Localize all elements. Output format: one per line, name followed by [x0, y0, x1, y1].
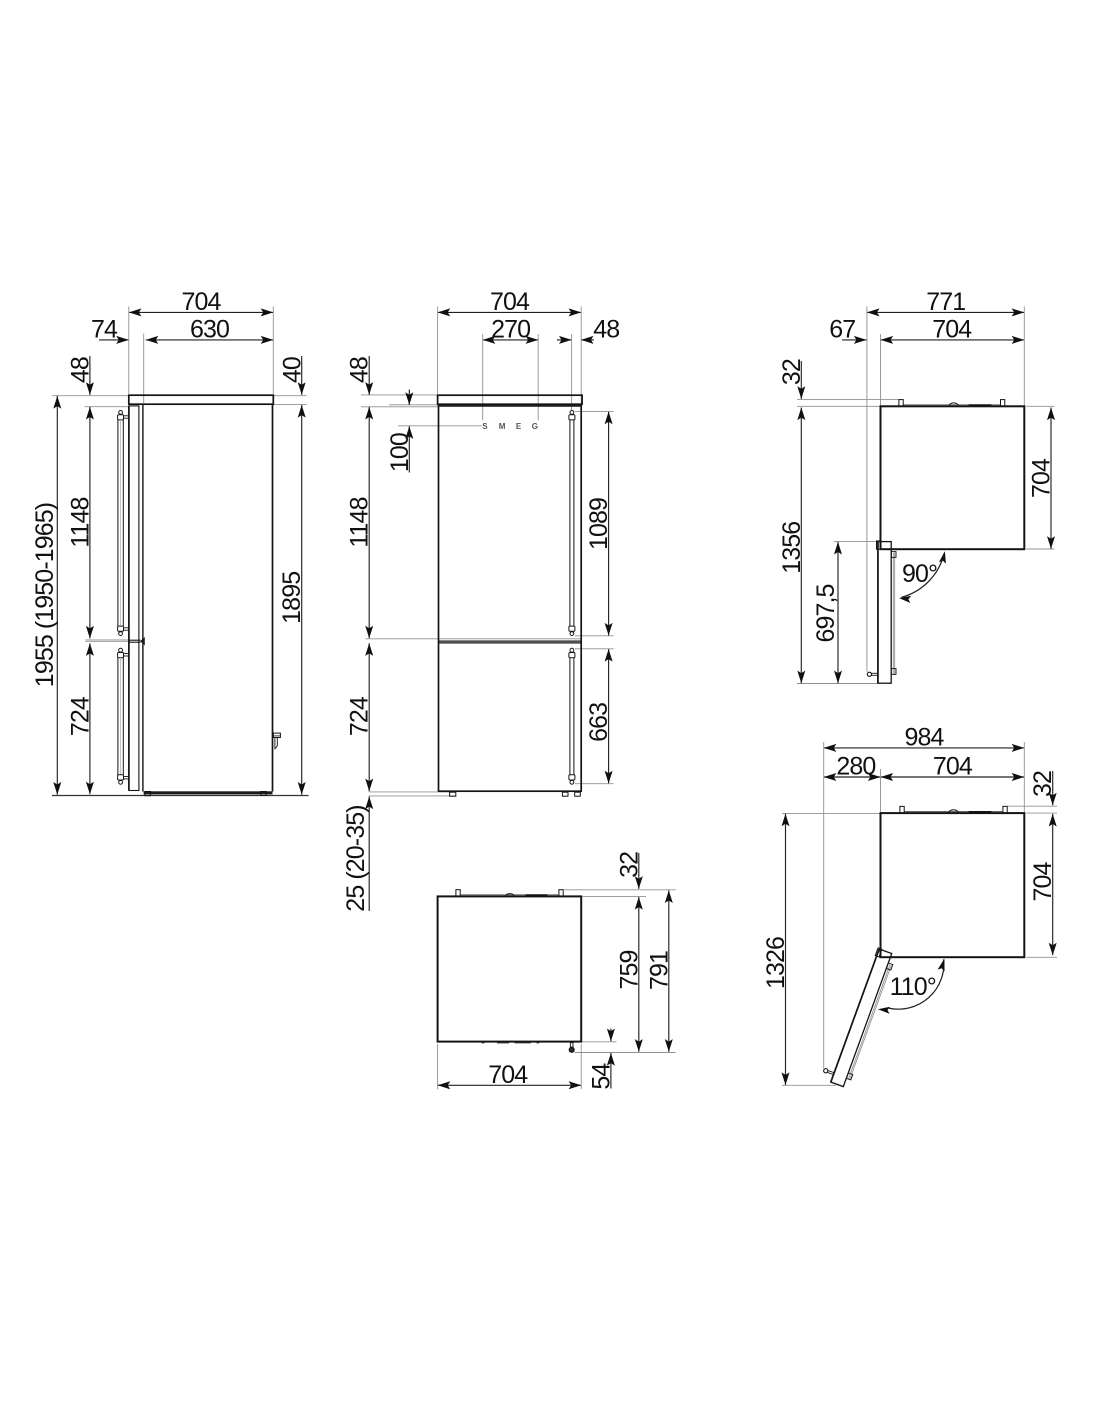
svg-text:270: 270 [491, 315, 530, 343]
svg-text:704: 704 [488, 1061, 528, 1089]
svg-text:704: 704 [490, 288, 530, 316]
svg-text:54: 54 [587, 1063, 615, 1090]
svg-text:32: 32 [778, 359, 806, 385]
svg-text:704: 704 [933, 753, 973, 781]
svg-text:759: 759 [615, 950, 643, 989]
svg-text:48: 48 [593, 315, 619, 343]
svg-text:704: 704 [1028, 458, 1056, 498]
svg-text:1148: 1148 [66, 497, 94, 547]
svg-text:1089: 1089 [585, 498, 613, 550]
svg-text:32: 32 [615, 852, 643, 878]
svg-text:697,5: 697,5 [812, 584, 840, 642]
svg-text:704: 704 [932, 315, 972, 343]
svg-text:280: 280 [836, 753, 875, 781]
svg-text:E: E [516, 422, 522, 431]
svg-text:771: 771 [926, 288, 965, 316]
svg-text:1356: 1356 [778, 522, 806, 574]
svg-text:1895: 1895 [278, 572, 306, 624]
svg-text:724: 724 [66, 696, 94, 736]
svg-text:G: G [532, 422, 538, 431]
svg-text:1955 (1950-1965): 1955 (1950-1965) [31, 503, 59, 687]
svg-text:1326: 1326 [762, 937, 790, 989]
svg-text:90°: 90° [902, 560, 937, 588]
svg-text:67: 67 [829, 315, 855, 343]
svg-text:32: 32 [1029, 771, 1057, 797]
svg-text:48: 48 [66, 357, 94, 383]
svg-text:704: 704 [181, 288, 221, 316]
svg-text:25 (20-35): 25 (20-35) [342, 805, 370, 911]
svg-text:110°: 110° [890, 973, 936, 1001]
svg-text:48: 48 [346, 357, 374, 383]
svg-text:630: 630 [190, 315, 229, 343]
svg-text:724: 724 [346, 696, 374, 736]
svg-text:704: 704 [1029, 862, 1057, 902]
svg-text:74: 74 [91, 315, 118, 343]
svg-text:M: M [499, 422, 506, 431]
svg-text:984: 984 [904, 723, 944, 751]
svg-text:1148: 1148 [346, 497, 374, 547]
svg-text:663: 663 [585, 703, 613, 742]
svg-text:100: 100 [386, 433, 414, 472]
svg-text:S: S [482, 422, 488, 431]
svg-text:40: 40 [278, 357, 306, 383]
svg-text:791: 791 [645, 951, 673, 990]
